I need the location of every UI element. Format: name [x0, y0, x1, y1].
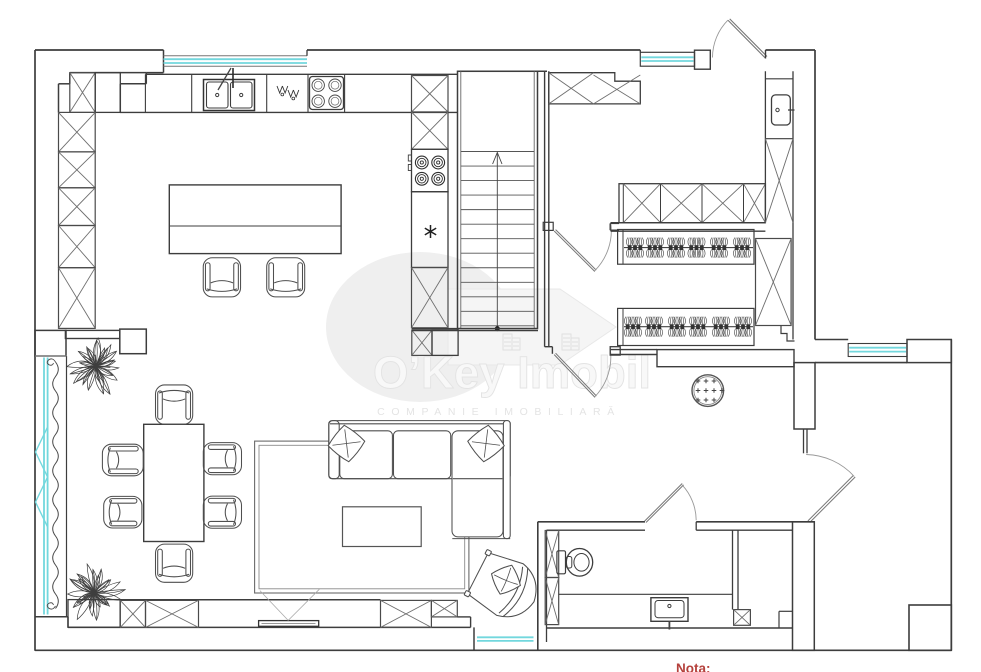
svg-text:COMPANIE IMOBILIARĂ: COMPANIE IMOBILIARĂ: [377, 405, 621, 418]
svg-text:Nota:: Nota:: [676, 661, 711, 672]
svg-text:O’Key Imobil: O’Key Imobil: [373, 347, 651, 398]
